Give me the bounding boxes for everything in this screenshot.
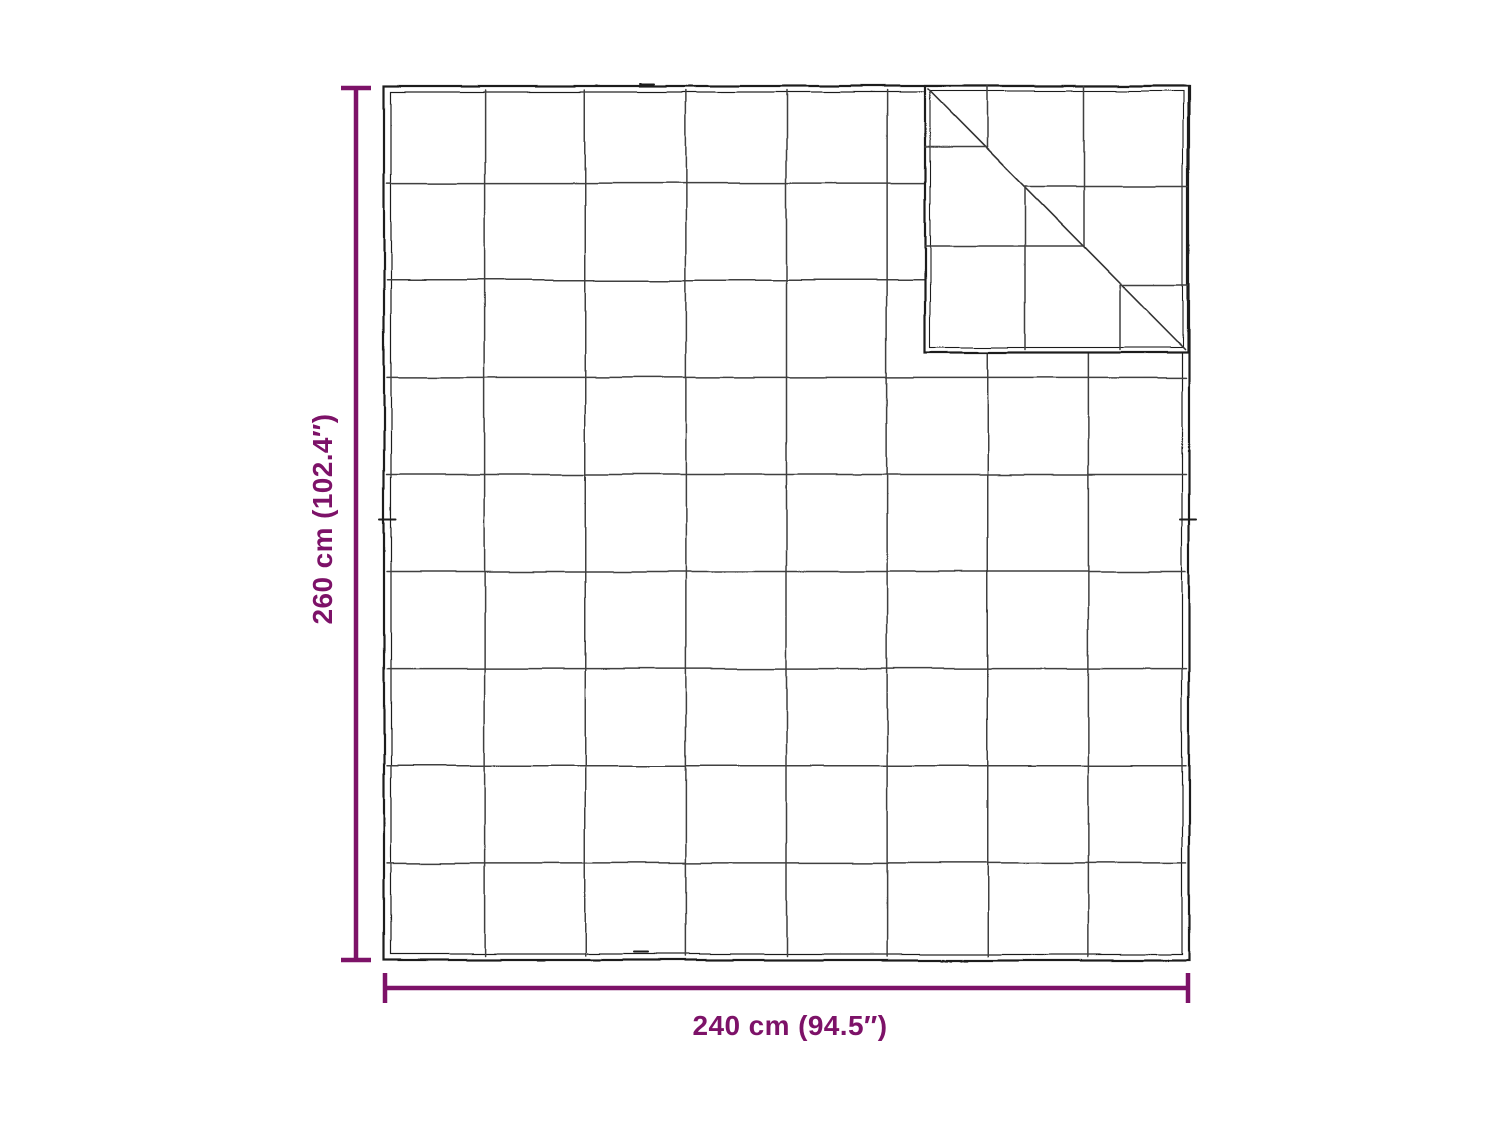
- diagram-canvas: [0, 0, 1500, 1125]
- width-dimension-label: 240 cm (94.5″): [693, 1010, 888, 1042]
- blanket-dimension-diagram: 260 cm (102.4″) 240 cm (94.5″): [0, 0, 1500, 1125]
- height-dimension-label: 260 cm (102.4″): [307, 414, 339, 625]
- blanket-sketch: [380, 84, 1196, 960]
